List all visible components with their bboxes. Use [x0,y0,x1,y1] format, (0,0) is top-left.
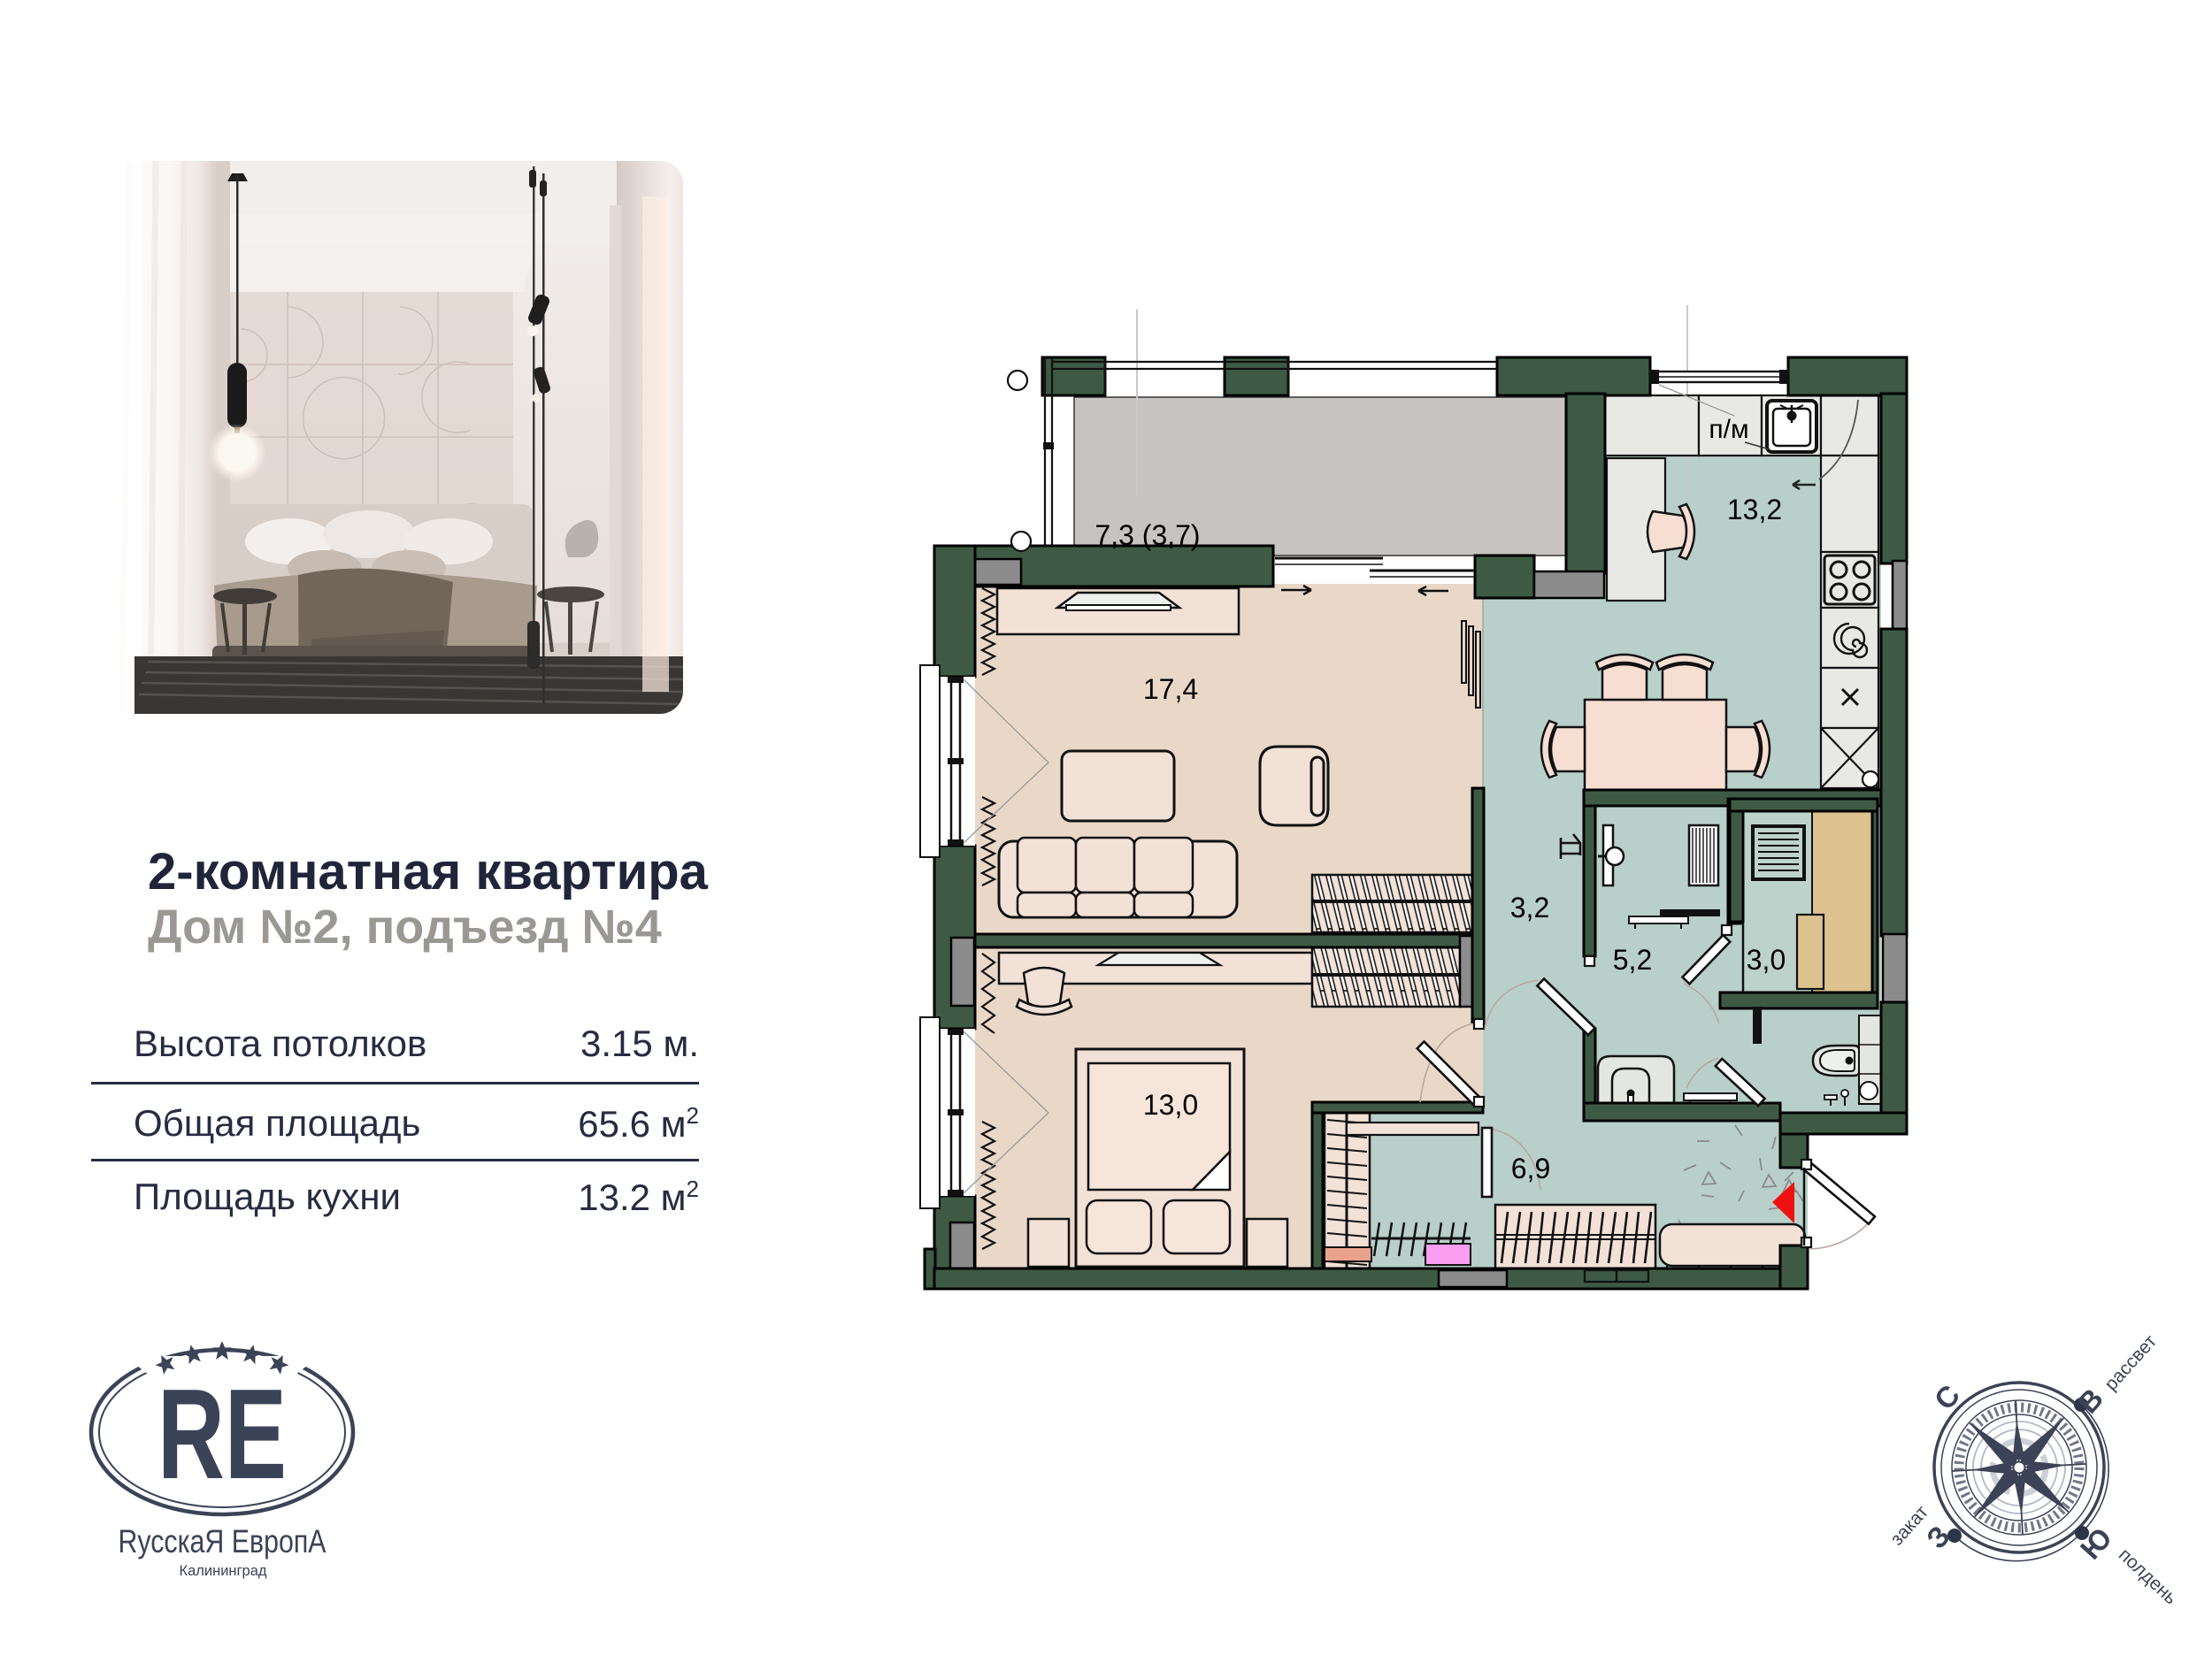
svg-text:7,3 (3,7): 7,3 (3,7) [1094,519,1200,551]
svg-text:3,2: 3,2 [1510,892,1549,923]
svg-text:С: С [1928,1378,1966,1415]
svg-text:рассвет: рассвет [2101,1330,2161,1394]
svg-text:В: В [2071,1382,2109,1419]
svg-text:6,9: 6,9 [1511,1153,1550,1184]
svg-text:З: З [1920,1520,1956,1555]
svg-text:13,0: 13,0 [1143,1089,1198,1121]
svg-text:полдень: полдень [2115,1544,2181,1608]
svg-text:17,4: 17,4 [1143,673,1198,705]
svg-text:13,2: 13,2 [1727,494,1782,525]
svg-text:3,0: 3,0 [1747,944,1786,976]
svg-text:5,2: 5,2 [1613,944,1652,976]
svg-text:п/м: п/м [1709,415,1748,444]
